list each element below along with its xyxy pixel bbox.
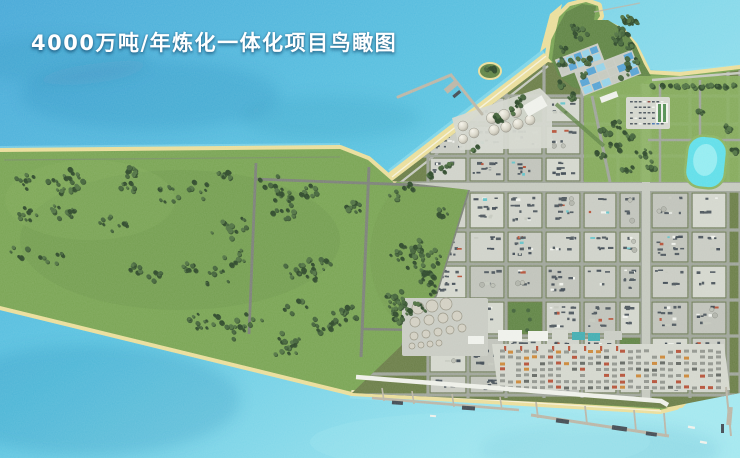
project-aerial-view: 4000万吨/年炼化一体化项目鸟瞰图 (0, 0, 740, 458)
scene-svg (0, 0, 740, 458)
project-title: 4000万吨/年炼化一体化项目鸟瞰图 (31, 27, 397, 57)
water-texture (0, 0, 740, 458)
